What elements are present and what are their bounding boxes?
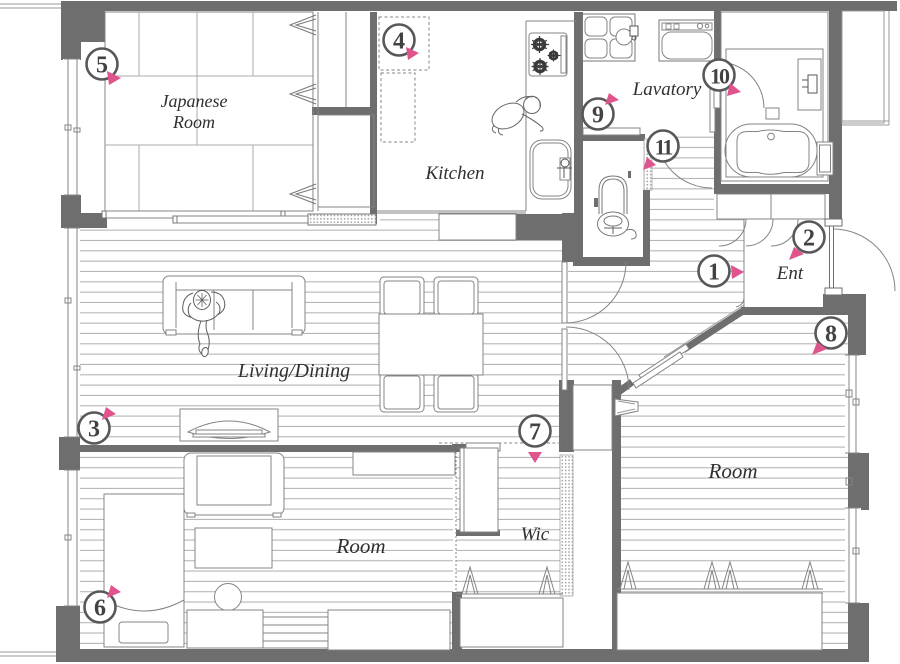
svg-text:10: 10 (710, 64, 730, 89)
svg-text:6: 6 (94, 596, 106, 622)
svg-text:Room: Room (708, 459, 758, 483)
svg-text:Room: Room (336, 534, 386, 558)
svg-text:Ent: Ent (776, 263, 804, 284)
svg-text:Wic: Wic (521, 524, 550, 545)
svg-text:4: 4 (393, 29, 405, 55)
svg-text:Japanese: Japanese (161, 91, 228, 111)
svg-text:8: 8 (825, 322, 837, 348)
svg-text:3: 3 (88, 417, 100, 443)
svg-text:9: 9 (592, 103, 604, 129)
svg-text:5: 5 (96, 53, 108, 79)
svg-text:1: 1 (708, 260, 720, 286)
svg-text:Lavatory: Lavatory (632, 79, 702, 100)
svg-text:Room: Room (172, 112, 215, 132)
svg-text:Kitchen: Kitchen (424, 163, 484, 184)
svg-text:Living/Dining: Living/Dining (237, 360, 350, 382)
svg-text:2: 2 (803, 226, 815, 252)
svg-text:7: 7 (529, 420, 541, 446)
svg-text:11: 11 (655, 135, 673, 160)
